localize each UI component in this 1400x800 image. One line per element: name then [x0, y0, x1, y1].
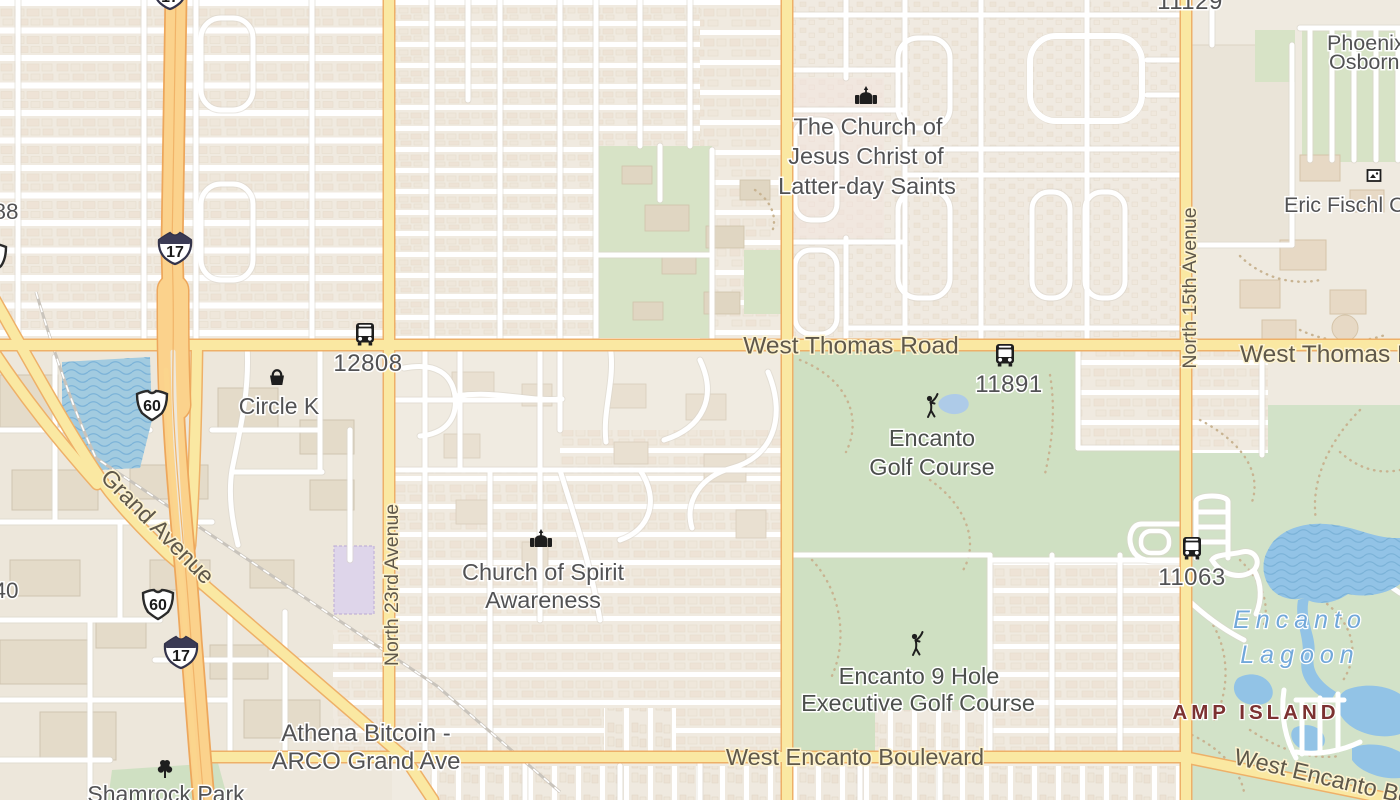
- svg-text:Executive Golf Course: Executive Golf Course: [801, 690, 1035, 716]
- svg-text:Lagoon: Lagoon: [1240, 641, 1359, 669]
- svg-text:Encanto: Encanto: [1233, 606, 1367, 634]
- svg-text:11891: 11891: [975, 371, 1042, 398]
- svg-text:Encanto: Encanto: [889, 425, 975, 451]
- svg-text:17: 17: [166, 244, 184, 261]
- svg-text:Jesus Christ of: Jesus Christ of: [788, 143, 944, 169]
- svg-text:Osborn Sc: Osborn Sc: [1329, 50, 1400, 74]
- svg-text:Church of Spirit: Church of Spirit: [462, 559, 624, 585]
- svg-text:11129: 11129: [1157, 0, 1223, 15]
- svg-text:ARCO Grand Ave: ARCO Grand Ave: [272, 748, 461, 775]
- svg-text:17: 17: [172, 648, 190, 665]
- svg-text:The Church of: The Church of: [794, 114, 943, 140]
- svg-text:60: 60: [149, 597, 167, 614]
- svg-text:Eric Fischl C: Eric Fischl C: [1284, 193, 1400, 217]
- svg-text:60: 60: [143, 398, 161, 415]
- svg-text:40: 40: [0, 578, 19, 603]
- svg-text:West Encanto Boulevard: West Encanto Boulevard: [726, 744, 984, 770]
- svg-text:Golf Course: Golf Course: [869, 454, 994, 480]
- svg-text:AMP ISLAND: AMP ISLAND: [1172, 701, 1339, 724]
- svg-text:11063: 11063: [1158, 564, 1225, 591]
- svg-text:North 23rd Avenue: North 23rd Avenue: [381, 504, 403, 666]
- svg-text:12808: 12808: [333, 350, 402, 377]
- svg-text:West Thomas Ro: West Thomas Ro: [1240, 341, 1400, 368]
- svg-text:North 15th Avenue: North 15th Avenue: [1179, 207, 1201, 368]
- svg-text:Shamrock Park: Shamrock Park: [87, 781, 245, 800]
- svg-text:Encanto 9 Hole: Encanto 9 Hole: [839, 663, 1000, 689]
- svg-text:88: 88: [0, 199, 19, 224]
- svg-text:Awareness: Awareness: [485, 587, 601, 613]
- svg-text:West Thomas Road: West Thomas Road: [743, 333, 959, 360]
- svg-text:Latter-day Saints: Latter-day Saints: [778, 173, 956, 199]
- svg-text:Athena Bitcoin -: Athena Bitcoin -: [281, 720, 450, 747]
- svg-text:Circle K: Circle K: [239, 393, 320, 419]
- svg-text:17: 17: [161, 0, 179, 6]
